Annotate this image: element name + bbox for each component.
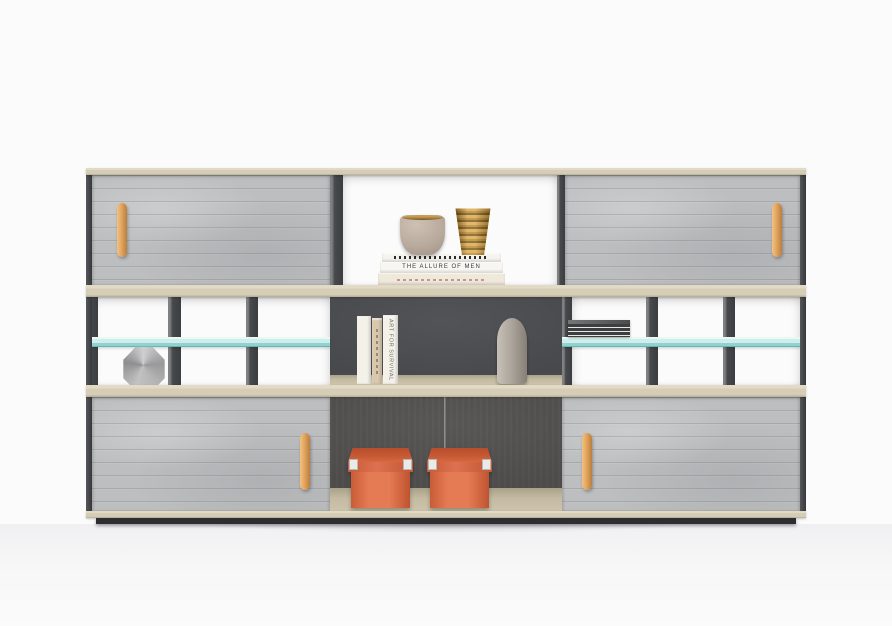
door-handle	[300, 433, 310, 490]
stone-bottle-vase	[497, 318, 527, 384]
cabinet-bottom-edge	[86, 511, 806, 518]
door-handle	[582, 433, 592, 490]
cabinet-cast-shadow	[78, 522, 814, 538]
cabinet-top-edge	[86, 168, 806, 175]
standing-book-tan	[372, 318, 382, 384]
sliding-door-top-right	[565, 175, 800, 285]
taupe-ceramic-vase	[400, 215, 445, 255]
door-handle	[117, 203, 127, 257]
standing-book-white	[357, 316, 371, 384]
top-row-divider-right	[557, 175, 565, 285]
side-panel-left	[86, 175, 92, 511]
sliding-door-bottom-right	[562, 397, 800, 511]
plinth-base	[96, 518, 796, 524]
standing-book-art-for-survival: ART FOR SURVIVAL	[383, 315, 398, 384]
orange-storage-box	[348, 448, 413, 508]
box-body	[351, 472, 410, 508]
box-corner-clip	[482, 459, 491, 470]
box-corner-clip	[403, 459, 412, 470]
magazine-stack	[568, 320, 630, 337]
top-row-divider-left	[330, 175, 343, 285]
vase-gold-rim	[402, 215, 443, 220]
box-body	[430, 472, 489, 508]
stacked-book-allure: THE ALLURE OF MEN	[380, 262, 503, 273]
shelf-band-upper	[86, 285, 806, 297]
side-panel-right	[800, 175, 806, 511]
sliding-door-top-left	[92, 175, 330, 285]
shelf-band-lower	[86, 385, 806, 397]
sliding-door-bottom-left	[92, 397, 330, 511]
product-photo-stage: ART FOR SURVIVAL THE ALLURE OF MEN	[0, 0, 892, 626]
box-corner-clip	[428, 459, 437, 470]
orange-storage-box	[427, 448, 492, 508]
glass-shelf-left	[92, 337, 330, 347]
door-handle	[772, 203, 782, 257]
book-spine-title: THE ALLURE OF MEN	[380, 262, 503, 273]
studio-floor	[0, 524, 892, 626]
sideboard-cabinet: ART FOR SURVIVAL THE ALLURE OF MEN	[86, 168, 806, 524]
glass-shelf-right	[562, 337, 800, 347]
box-corner-clip	[349, 459, 358, 470]
stacked-book-cream	[378, 273, 505, 285]
book-spine-title: ART FOR SURVIVAL	[383, 315, 398, 384]
